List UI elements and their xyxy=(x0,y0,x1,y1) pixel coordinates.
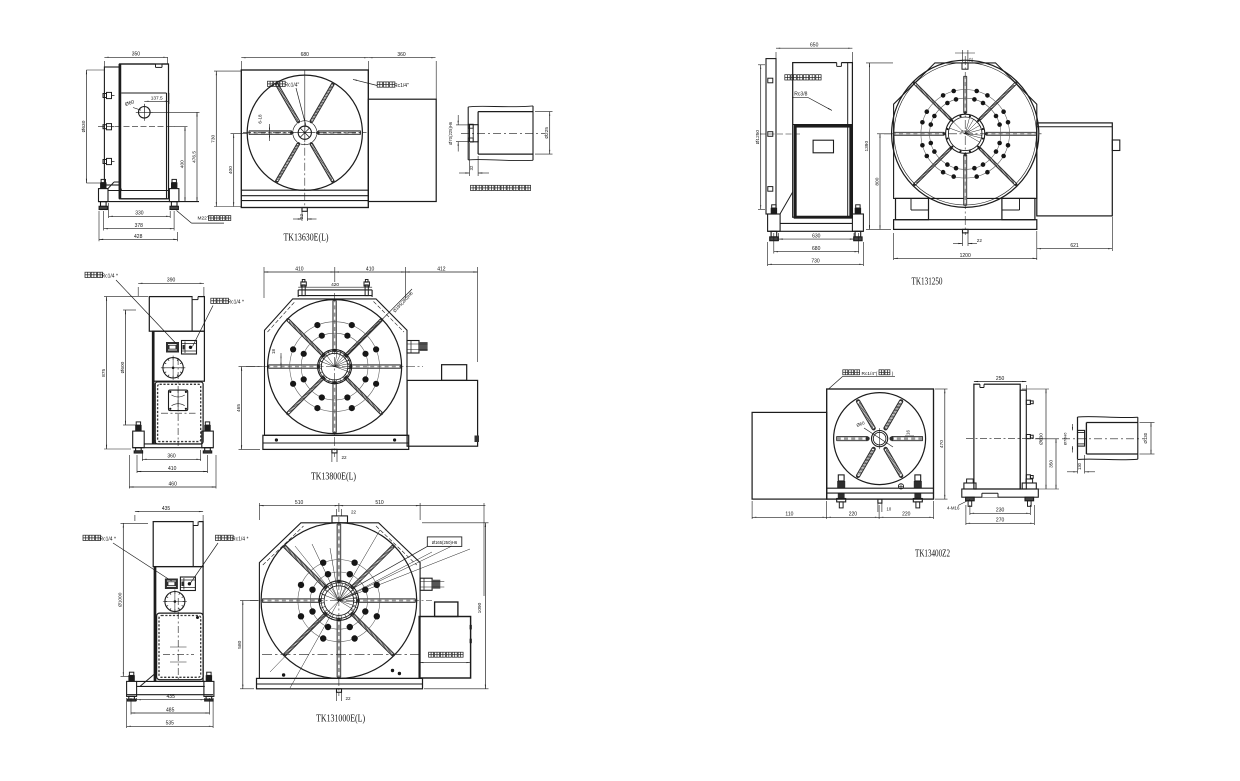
svg-text:Ø76H6: Ø76H6 xyxy=(1063,432,1068,445)
svg-text:230: 230 xyxy=(996,508,1005,514)
svg-text:18: 18 xyxy=(271,349,276,354)
svg-text:Ø70(225)H6: Ø70(225)H6 xyxy=(448,121,453,145)
svg-text:510: 510 xyxy=(295,500,304,506)
svg-text:485: 485 xyxy=(166,707,175,713)
svg-text:400: 400 xyxy=(228,166,234,174)
svg-text:730: 730 xyxy=(211,134,217,142)
svg-text:Ø600: Ø600 xyxy=(120,361,126,373)
svg-text:Rc1/4"(: Rc1/4"( xyxy=(862,371,878,377)
svg-text:420: 420 xyxy=(331,282,339,288)
svg-text:Rc1/4": Rc1/4" xyxy=(394,83,409,89)
svg-text:Ø130: Ø130 xyxy=(1143,432,1148,443)
svg-text:TK13630E(L): TK13630E(L) xyxy=(284,233,329,244)
svg-text:4-M16: 4-M16 xyxy=(947,506,960,511)
svg-text:410: 410 xyxy=(366,266,375,272)
svg-text:110: 110 xyxy=(785,512,793,518)
svg-text:22: 22 xyxy=(299,214,304,220)
svg-text:350: 350 xyxy=(1049,460,1055,468)
svg-text:476.5: 476.5 xyxy=(191,151,197,163)
svg-text:Ø1250: Ø1250 xyxy=(755,130,761,145)
svg-text:22: 22 xyxy=(977,238,983,243)
svg-text:680: 680 xyxy=(812,246,821,252)
svg-text:220: 220 xyxy=(849,512,858,518)
svg-text:378: 378 xyxy=(135,223,144,229)
svg-text:412: 412 xyxy=(437,266,446,272)
svg-text:350: 350 xyxy=(132,52,141,58)
svg-text:410: 410 xyxy=(295,266,304,272)
svg-text:465: 465 xyxy=(236,404,242,412)
svg-text:22: 22 xyxy=(969,57,974,62)
svg-text:22: 22 xyxy=(351,510,357,515)
svg-text:680: 680 xyxy=(301,52,310,58)
svg-text:428: 428 xyxy=(134,234,143,240)
svg-text:535: 535 xyxy=(166,721,175,727)
svg-text:Rc1/4 *: Rc1/4 * xyxy=(100,537,116,543)
svg-text:470: 470 xyxy=(939,440,945,448)
svg-text:460: 460 xyxy=(169,481,178,487)
svg-text:360: 360 xyxy=(167,454,176,460)
svg-text:Ø1000: Ø1000 xyxy=(118,592,124,607)
svg-text:220: 220 xyxy=(902,512,911,518)
svg-text:22: 22 xyxy=(346,696,352,701)
svg-text:M22T: M22T xyxy=(198,216,210,222)
svg-text:360: 360 xyxy=(397,52,406,58)
svg-text:1090: 1090 xyxy=(477,602,483,613)
svg-text:270: 270 xyxy=(996,518,1005,524)
svg-text:16: 16 xyxy=(906,430,911,435)
svg-text:650: 650 xyxy=(810,43,819,49)
svg-text:TK13800E(L): TK13800E(L) xyxy=(311,472,356,483)
svg-text:Rc1/4 *: Rc1/4 * xyxy=(102,274,118,280)
svg-text:Rc1/4 *: Rc1/4 * xyxy=(232,537,248,543)
svg-text:400: 400 xyxy=(179,160,185,168)
svg-text:435: 435 xyxy=(162,506,171,512)
svg-text:621: 621 xyxy=(1070,243,1079,249)
svg-text:630: 630 xyxy=(812,234,821,240)
svg-text:TK131000E(L): TK131000E(L) xyxy=(316,714,365,725)
svg-text:130: 130 xyxy=(1077,462,1082,470)
svg-text:250: 250 xyxy=(996,376,1005,382)
svg-text:875: 875 xyxy=(101,368,107,376)
svg-text:22: 22 xyxy=(342,455,348,460)
svg-text:510: 510 xyxy=(375,500,384,506)
svg-text:435: 435 xyxy=(167,694,176,700)
svg-text:10: 10 xyxy=(887,507,892,512)
svg-text:TK131250: TK131250 xyxy=(912,277,943,288)
svg-text:800: 800 xyxy=(874,177,880,185)
svg-text:Rc1/4 *: Rc1/4 * xyxy=(228,300,244,306)
svg-text:Ø630: Ø630 xyxy=(81,120,87,132)
svg-text:1390: 1390 xyxy=(864,141,870,152)
svg-text:Ø225: Ø225 xyxy=(544,127,550,139)
svg-text:410: 410 xyxy=(168,466,177,472)
svg-text:580: 580 xyxy=(237,640,243,648)
svg-text:Ø165(250)H6: Ø165(250)H6 xyxy=(432,540,458,545)
svg-text:1200: 1200 xyxy=(960,253,971,259)
svg-text:TK13400Z2: TK13400Z2 xyxy=(915,549,950,560)
svg-text:390: 390 xyxy=(167,278,176,284)
svg-text:330: 330 xyxy=(135,211,144,217)
svg-text:Rc3/8: Rc3/8 xyxy=(794,92,807,98)
svg-text:137.5: 137.5 xyxy=(151,96,163,102)
svg-text:730: 730 xyxy=(811,259,820,265)
svg-text:6-18: 6-18 xyxy=(258,114,263,124)
svg-text:32: 32 xyxy=(469,165,474,170)
svg-text:Rc1/4": Rc1/4" xyxy=(285,83,300,89)
